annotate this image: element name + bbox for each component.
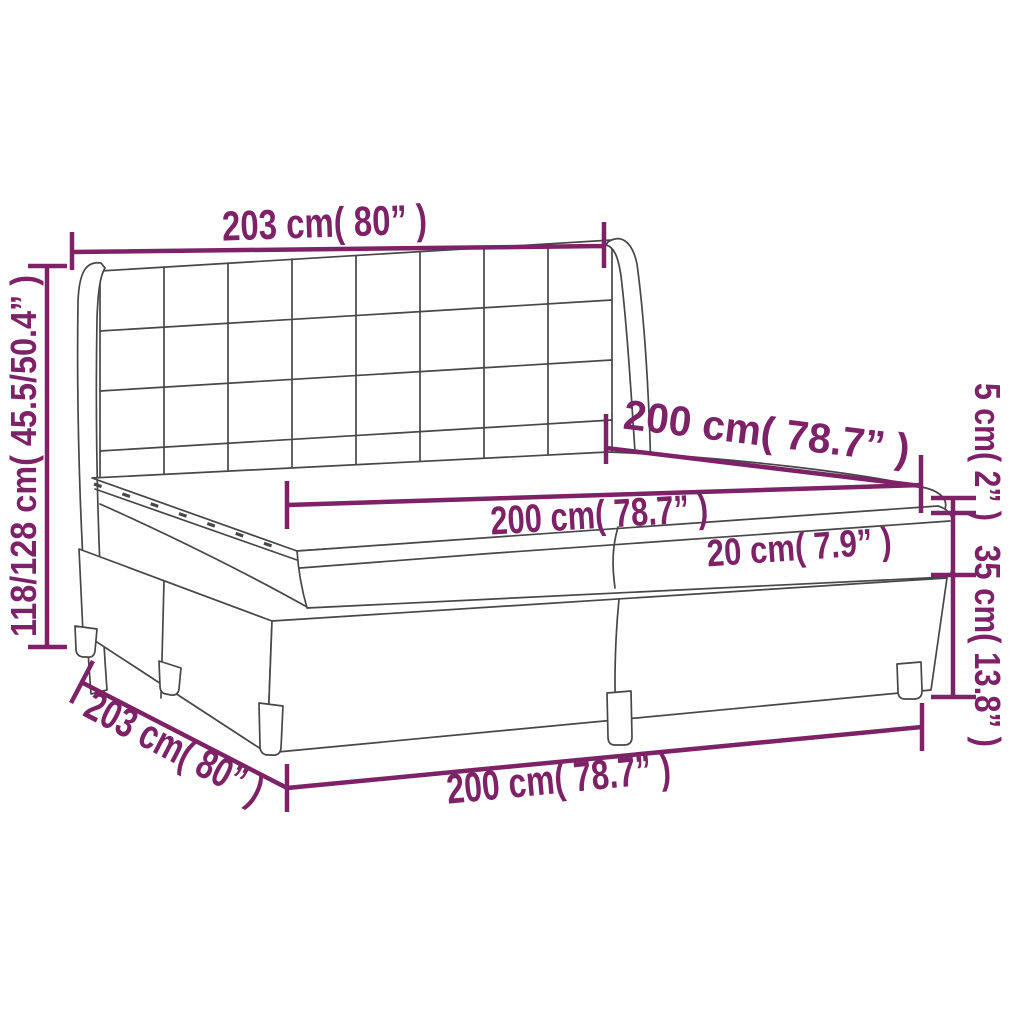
dim-label-overall-height: 118/128 cm( 45.5/50.4” ) (3, 275, 44, 637)
dim-label-base-height: 35 cm( 13.8” ) (967, 545, 1008, 747)
bed-leg-front-left (259, 703, 283, 755)
dim-label-base-width: 200 cm( 78.7” ) (444, 744, 672, 812)
bed-dimension-diagram: 203 cm( 80” ) 118/128 cm( 45.5/50.4” ) 2… (0, 0, 1024, 1024)
bed-leg-side-middle (159, 661, 181, 695)
bed-leg-front-right (897, 662, 922, 699)
dim-label-headboard-width: 203 cm( 80” ) (221, 195, 428, 249)
bed-leg-front-middle (607, 691, 632, 745)
bed-leg-rear-left (75, 626, 97, 657)
headboard-tufting-grid (100, 244, 612, 474)
dimension-diagram-canvas: 203 cm( 80” ) 118/128 cm( 45.5/50.4” ) 2… (0, 0, 1024, 1024)
dim-label-topper-thickness: 5 cm( 2” ) (967, 383, 1008, 521)
